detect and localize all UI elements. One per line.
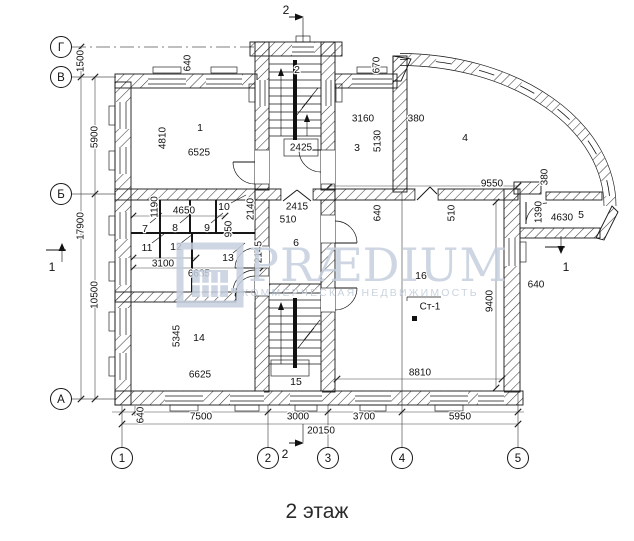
svg-text:3: 3: [325, 453, 331, 465]
window-left-6: [109, 353, 131, 380]
column-label: Ст-1: [420, 302, 441, 313]
section-1-left-label: 1: [49, 260, 56, 274]
dim-bottom-20150: 20150: [307, 426, 335, 437]
room-1: 1: [197, 122, 203, 134]
dim-r3-380: 380: [408, 114, 425, 125]
dim-r3-5130: 5130: [373, 129, 384, 152]
section-1-right-label: 1: [563, 260, 570, 274]
dimension-lines: [78, 44, 524, 427]
dim-bottom-640: 640: [136, 406, 147, 423]
dim-r5-1390: 1390: [534, 200, 545, 223]
watermark-bullet: [231, 288, 236, 293]
dim-r16-9400: 9400: [485, 289, 496, 312]
dim-r6-510: 510: [280, 215, 297, 226]
axis-row-v: В: [51, 67, 72, 88]
dim-r4-380: 380: [540, 168, 551, 185]
section-2-bottom: 2: [282, 424, 304, 461]
dim-top-640: 640: [183, 54, 194, 71]
axis-col-4: 4: [392, 448, 413, 469]
stair-stringer: [293, 298, 297, 368]
svg-text:А: А: [57, 394, 65, 406]
dim-r5-4630: 4630: [551, 213, 574, 224]
dim-bottom-5950: 5950: [449, 412, 472, 423]
section-2-bottom-label: 2: [282, 447, 289, 461]
window-bottom-4: [355, 392, 391, 412]
section-1-left: 1: [46, 243, 66, 274]
room-7: 7: [142, 223, 148, 235]
dim-r6-2415: 2415: [286, 202, 309, 213]
window-top-1: [148, 67, 186, 88]
window-bottom-6: [478, 392, 504, 405]
dim-top-670: 670: [372, 56, 383, 73]
window-tower-right: [322, 80, 343, 106]
floor-plan-drawing: 1500 5900 17900 10500 640 7500 3000 3700…: [0, 0, 634, 541]
room-10: 10: [218, 201, 230, 213]
section-1-right: 1: [545, 236, 570, 274]
dim-left-1500: 1500: [76, 49, 87, 72]
dim-r1-6525: 6525: [188, 148, 211, 159]
door-room4-room16: [415, 187, 438, 200]
floor-plan-page: 1500 5900 17900 10500 640 7500 3000 3700…: [0, 0, 634, 541]
room-3: 3: [354, 142, 360, 154]
window-right-1: [505, 238, 527, 266]
dim-r16-640: 640: [373, 204, 384, 221]
svg-text:Г: Г: [58, 42, 65, 54]
window-left-3: [109, 212, 131, 239]
dim-r14-5345: 5345: [172, 324, 183, 347]
window-left-5: [109, 308, 131, 335]
dim-r1-4810: 4810: [158, 126, 169, 149]
window-bottom-1: [165, 392, 203, 412]
dim-bottom-7500: 7500: [190, 412, 213, 423]
section-2-top-label: 2: [283, 3, 290, 17]
svg-text:5: 5: [515, 453, 521, 465]
dim-lobby-2425: 2425: [290, 143, 313, 154]
svg-text:Б: Б: [57, 189, 65, 201]
room-13: 13: [222, 252, 234, 264]
dim-r16-8810: 8810: [409, 368, 432, 379]
column-symbol: [412, 316, 417, 321]
svg-text:1: 1: [119, 453, 125, 465]
window-bottom-3: [290, 392, 322, 412]
page-title: 2 этаж: [286, 500, 349, 523]
column-mark: Ст-1: [407, 297, 441, 321]
dim-c-4650: 4650: [173, 206, 196, 217]
axis-row-a: А: [51, 389, 72, 410]
axis-row-b: Б: [51, 184, 72, 205]
watermark-brand: PRÆDIUM: [248, 238, 508, 292]
window-top-2: [206, 67, 242, 88]
axis-col-1: 1: [112, 448, 133, 469]
svg-text:2: 2: [265, 453, 271, 465]
watermark-tagline: КОММЕРЧЕСКАЯ НЕДВИЖИМОСТЬ: [242, 287, 479, 299]
dim-r3-3160: 3160: [352, 114, 375, 125]
dim-bottom-3000: 3000: [287, 412, 310, 423]
dim-r4-9550: 9550: [481, 179, 504, 190]
dim-left-17900: 17900: [76, 212, 87, 240]
svg-text:4: 4: [399, 453, 406, 465]
room-9: 9: [204, 222, 210, 234]
window-left-2: [109, 147, 131, 174]
curved-wall: [400, 54, 616, 207]
window-bottom-2: [230, 392, 264, 412]
axis-col-3: 3: [318, 448, 339, 469]
door-room1: [233, 150, 269, 184]
room-5: 5: [578, 209, 584, 221]
dim-c-950: 950: [224, 220, 235, 237]
svg-text:В: В: [57, 72, 65, 84]
room-15: 15: [290, 376, 302, 388]
window-tower-left: [249, 80, 269, 106]
window-left-4: [109, 258, 131, 285]
dim-c-1190: 1190: [150, 196, 161, 218]
dim-c-2140: 2140: [246, 197, 257, 220]
dim-left-10500: 10500: [90, 281, 101, 309]
axis-col-5: 5: [508, 448, 529, 469]
dim-c-3100: 3100: [152, 259, 175, 270]
axis-col-2: 2: [258, 448, 279, 469]
room-8: 8: [172, 222, 178, 234]
room-11: 11: [142, 242, 153, 254]
door-lobby-double: [281, 189, 313, 201]
room-4: 4: [462, 132, 468, 144]
dim-r14-6625: 6625: [189, 370, 212, 381]
dim-bottom-3700: 3700: [353, 412, 376, 423]
dim-left-5900: 5900: [90, 125, 101, 148]
room-14: 14: [193, 332, 205, 344]
dim-r16-640b: 640: [528, 280, 545, 291]
window-bottom-5: [430, 392, 468, 412]
stairwell-lower: [269, 298, 321, 376]
door-room3: [299, 150, 335, 184]
dim-r16-510: 510: [447, 204, 458, 221]
window-left-1: [109, 102, 131, 129]
room-2: 2: [294, 64, 300, 76]
axis-row-g: Г: [51, 37, 72, 58]
